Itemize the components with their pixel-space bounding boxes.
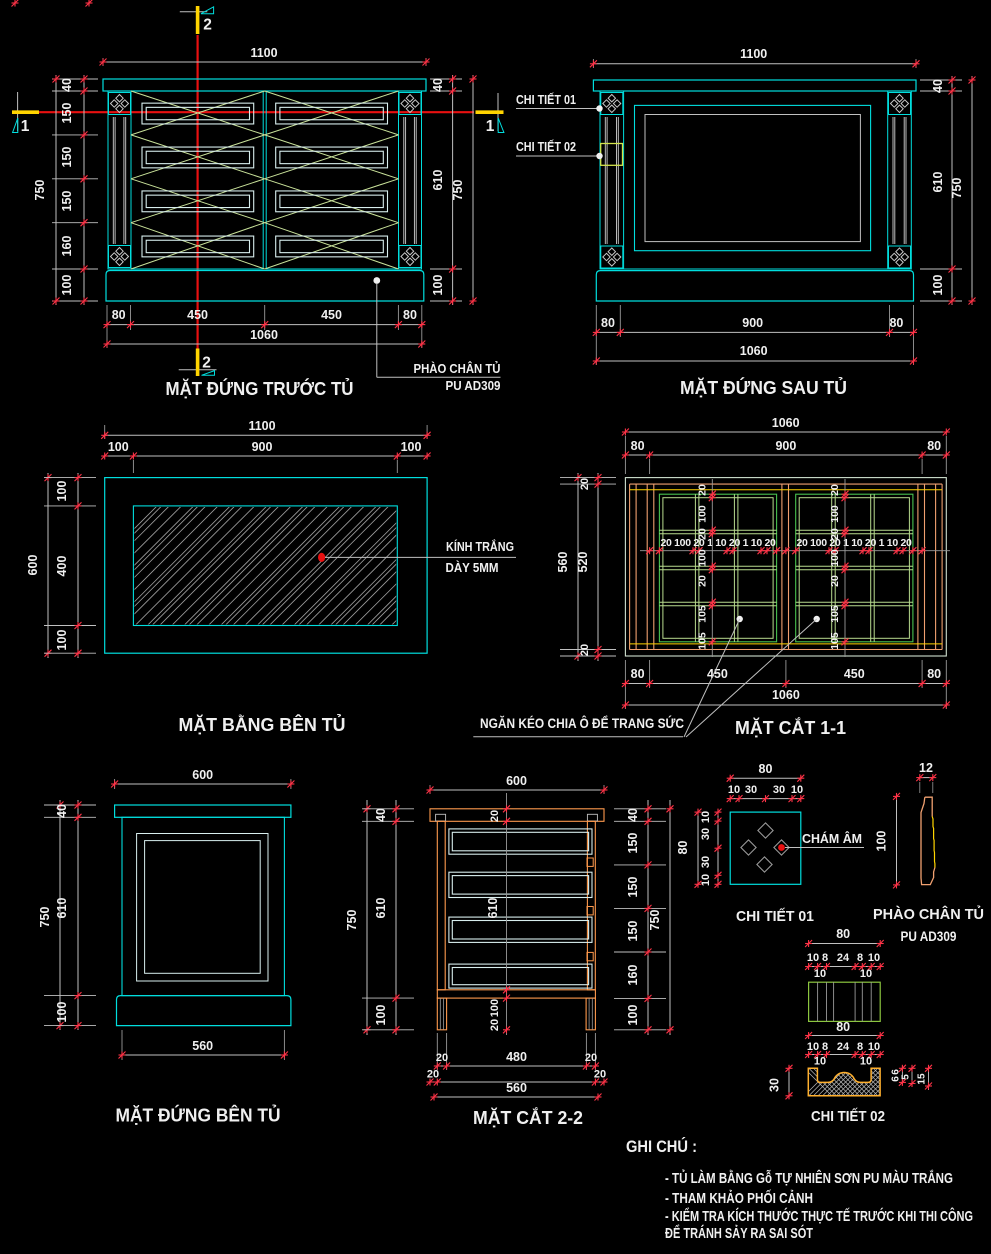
svg-text:450: 450: [187, 308, 208, 322]
svg-text:MẶT BẰNG BÊN TỦ: MẶT BẰNG BÊN TỦ: [179, 714, 346, 735]
svg-text:10: 10: [728, 784, 740, 796]
svg-text:10: 10: [807, 1041, 819, 1053]
svg-text:600: 600: [192, 768, 213, 782]
svg-text:20: 20: [829, 484, 841, 496]
svg-text:- TỦ LÀM BẰNG Gỗ TỰ NHIÊN SƠN: - TỦ LÀM BẰNG Gỗ TỰ NHIÊN SƠN PU MÀU TRẮ…: [665, 1169, 953, 1187]
svg-text:610: 610: [55, 898, 69, 919]
svg-text:160: 160: [60, 236, 74, 257]
svg-text:610: 610: [431, 170, 445, 191]
svg-text:1: 1: [486, 118, 495, 135]
svg-text:GHI CHÚ :: GHI CHÚ :: [626, 1137, 697, 1156]
svg-text:CHI TIẾT 01: CHI TIẾT 01: [736, 908, 814, 925]
svg-text:100: 100: [931, 275, 945, 296]
svg-text:10: 10: [700, 874, 712, 886]
svg-text:80: 80: [676, 841, 690, 855]
svg-text:10: 10: [807, 952, 819, 964]
svg-text:80: 80: [927, 439, 941, 453]
svg-text:40: 40: [431, 78, 445, 92]
svg-text:1100: 1100: [740, 47, 767, 61]
svg-text:MẶT CẮT 2-2: MẶT CẮT 2-2: [473, 1107, 583, 1128]
svg-text:40: 40: [626, 808, 640, 822]
svg-text:NGĂN KÉO CHIA Ô ĐỂ TRANG SỨC: NGĂN KÉO CHIA Ô ĐỂ TRANG SỨC: [480, 716, 684, 731]
svg-text:10: 10: [860, 968, 872, 980]
svg-text:600: 600: [506, 774, 527, 788]
svg-text:80: 80: [836, 927, 850, 941]
svg-text:PHÀO CHÂN TỦ: PHÀO CHÂN TỦ: [873, 905, 984, 923]
svg-text:80: 80: [403, 308, 417, 322]
svg-text:20: 20: [696, 575, 708, 587]
svg-text:20: 20: [489, 1019, 501, 1031]
svg-text:150: 150: [626, 833, 640, 854]
svg-text:2: 2: [203, 17, 212, 34]
svg-text:20: 20: [829, 528, 841, 540]
svg-text:- THAM KHẢO PHỐI CẢNH: - THAM KHẢO PHỐI CẢNH: [665, 1189, 813, 1207]
svg-text:2: 2: [202, 355, 211, 372]
svg-text:105: 105: [696, 605, 708, 623]
svg-text:- KIỂM TRA KÍCH THƯỚC THỰC TẾ: - KIỂM TRA KÍCH THƯỚC THỰC TẾ TRƯỚC KHI …: [665, 1207, 973, 1225]
svg-text:1060: 1060: [772, 688, 800, 702]
svg-text:10: 10: [814, 1056, 826, 1068]
svg-text:PU AD309: PU AD309: [901, 929, 957, 944]
svg-text:10: 10: [868, 952, 880, 964]
svg-text:520: 520: [576, 552, 590, 573]
svg-text:100: 100: [626, 1005, 640, 1026]
svg-text:30: 30: [773, 784, 785, 796]
svg-text:KÍNH TRẮNG: KÍNH TRẮNG: [446, 539, 514, 554]
svg-text:30: 30: [700, 856, 712, 868]
svg-text:750: 750: [345, 910, 359, 931]
svg-text:PHÀO CHÂN TỦ: PHÀO CHÂN TỦ: [414, 361, 501, 376]
svg-text:40: 40: [60, 78, 74, 92]
svg-text:1100: 1100: [248, 419, 275, 433]
svg-text:150: 150: [626, 877, 640, 898]
svg-text:1060: 1060: [250, 328, 278, 342]
svg-text:20 100 20 1 10 20 1 10 20: 20 100 20 1 10 20 1 10 20: [796, 537, 912, 549]
svg-text:100: 100: [431, 275, 445, 296]
svg-text:DÀY 5MM: DÀY 5MM: [446, 560, 499, 575]
svg-text:80: 80: [759, 762, 773, 776]
svg-text:20: 20: [696, 528, 708, 540]
svg-text:MẶT ĐỨNG TRƯỚC TỦ: MẶT ĐỨNG TRƯỚC TỦ: [166, 378, 354, 399]
svg-text:40: 40: [931, 79, 945, 93]
svg-text:15: 15: [917, 1073, 928, 1085]
svg-text:100: 100: [401, 440, 422, 454]
svg-text:150: 150: [60, 147, 74, 168]
svg-text:20: 20: [427, 1069, 439, 1081]
svg-text:100: 100: [55, 1002, 69, 1023]
svg-text:450: 450: [844, 667, 865, 681]
svg-text:900: 900: [742, 316, 763, 330]
svg-text:80: 80: [112, 308, 126, 322]
svg-text:150: 150: [60, 103, 74, 124]
svg-text:8: 8: [822, 952, 828, 964]
svg-text:100: 100: [55, 630, 69, 651]
svg-text:105: 105: [829, 605, 841, 623]
svg-text:20: 20: [585, 1052, 597, 1064]
svg-text:10: 10: [791, 784, 803, 796]
svg-text:8: 8: [857, 1041, 863, 1053]
svg-text:560: 560: [192, 1039, 213, 1053]
svg-text:80: 80: [889, 316, 903, 330]
svg-text:20: 20: [436, 1052, 448, 1064]
svg-text:450: 450: [707, 667, 728, 681]
svg-text:100: 100: [374, 1005, 388, 1026]
svg-text:CHI TIẾT 01: CHI TIẾT 01: [516, 92, 576, 107]
svg-text:8: 8: [857, 952, 863, 964]
svg-text:610: 610: [931, 172, 945, 193]
svg-text:MẶT CẮT 1-1: MẶT CẮT 1-1: [735, 717, 846, 738]
svg-text:80: 80: [631, 439, 645, 453]
svg-text:CHI TIẾT 02: CHI TIẾT 02: [516, 139, 576, 154]
svg-text:80: 80: [836, 1020, 850, 1034]
svg-text:100: 100: [829, 505, 841, 523]
svg-text:100: 100: [696, 505, 708, 523]
svg-text:1060: 1060: [772, 416, 800, 430]
svg-text:10: 10: [700, 811, 712, 823]
svg-text:20: 20: [594, 1069, 606, 1081]
svg-text:12: 12: [919, 761, 933, 775]
svg-text:80: 80: [601, 316, 615, 330]
svg-text:900: 900: [252, 440, 273, 454]
svg-text:100: 100: [55, 481, 69, 502]
svg-text:105: 105: [696, 632, 708, 650]
svg-text:160: 160: [626, 965, 640, 986]
svg-text:750: 750: [38, 907, 52, 928]
svg-text:40: 40: [55, 804, 69, 818]
svg-text:24: 24: [837, 952, 850, 964]
svg-text:100: 100: [696, 549, 708, 567]
svg-text:PU AD309: PU AD309: [446, 378, 501, 393]
svg-text:20: 20: [489, 810, 501, 822]
svg-text:100: 100: [108, 440, 129, 454]
svg-text:10: 10: [868, 1041, 880, 1053]
svg-text:ĐỂ TRÁNH SẢY RA SAI SÓT: ĐỂ TRÁNH SẢY RA SAI SÓT: [665, 1224, 813, 1242]
svg-text:20: 20: [579, 644, 591, 656]
svg-text:560: 560: [556, 552, 570, 573]
svg-text:20: 20: [829, 575, 841, 587]
svg-text:610: 610: [374, 898, 388, 919]
svg-text:30: 30: [745, 784, 757, 796]
svg-text:150: 150: [626, 921, 640, 942]
svg-text:1060: 1060: [740, 344, 768, 358]
svg-text:20 100 20 1 10 20 1 10 20: 20 100 20 1 10 20 1 10 20: [660, 537, 776, 549]
svg-text:400: 400: [55, 556, 69, 577]
svg-text:40: 40: [374, 808, 388, 822]
svg-text:1100: 1100: [250, 46, 277, 60]
svg-text:560: 560: [506, 1081, 527, 1095]
svg-text:CHÁM ÂM: CHÁM ÂM: [802, 831, 862, 846]
svg-text:CHI TIẾT 02: CHI TIẾT 02: [811, 1108, 885, 1125]
svg-text:900: 900: [775, 439, 796, 453]
svg-text:750: 750: [451, 180, 465, 201]
svg-text:100: 100: [875, 831, 889, 852]
svg-text:30: 30: [700, 828, 712, 840]
svg-text:8: 8: [822, 1041, 828, 1053]
svg-text:600: 600: [26, 555, 40, 576]
svg-text:10: 10: [860, 1056, 872, 1068]
svg-text:100: 100: [60, 275, 74, 296]
svg-text:750: 750: [950, 178, 964, 199]
svg-text:80: 80: [927, 667, 941, 681]
svg-text:MẶT ĐỨNG SAU TỦ: MẶT ĐỨNG SAU TỦ: [680, 377, 847, 398]
svg-text:100: 100: [829, 549, 841, 567]
svg-text:10: 10: [814, 968, 826, 980]
svg-text:450: 450: [321, 308, 342, 322]
svg-text:20: 20: [579, 478, 591, 490]
svg-text:5: 5: [901, 1074, 912, 1080]
svg-text:610: 610: [486, 898, 500, 919]
svg-text:750: 750: [33, 180, 47, 201]
svg-text:1: 1: [21, 118, 30, 135]
svg-text:480: 480: [506, 1050, 527, 1064]
svg-text:100: 100: [489, 999, 501, 1017]
svg-text:150: 150: [60, 191, 74, 212]
svg-text:6: 6: [891, 1069, 902, 1075]
svg-text:750: 750: [648, 910, 662, 931]
svg-text:24: 24: [837, 1041, 850, 1053]
svg-text:30: 30: [768, 1078, 782, 1092]
svg-text:MẶT ĐỨNG BÊN TỦ: MẶT ĐỨNG BÊN TỦ: [116, 1105, 281, 1126]
svg-text:80: 80: [631, 667, 645, 681]
svg-text:20: 20: [696, 484, 708, 496]
svg-text:105: 105: [829, 632, 841, 650]
